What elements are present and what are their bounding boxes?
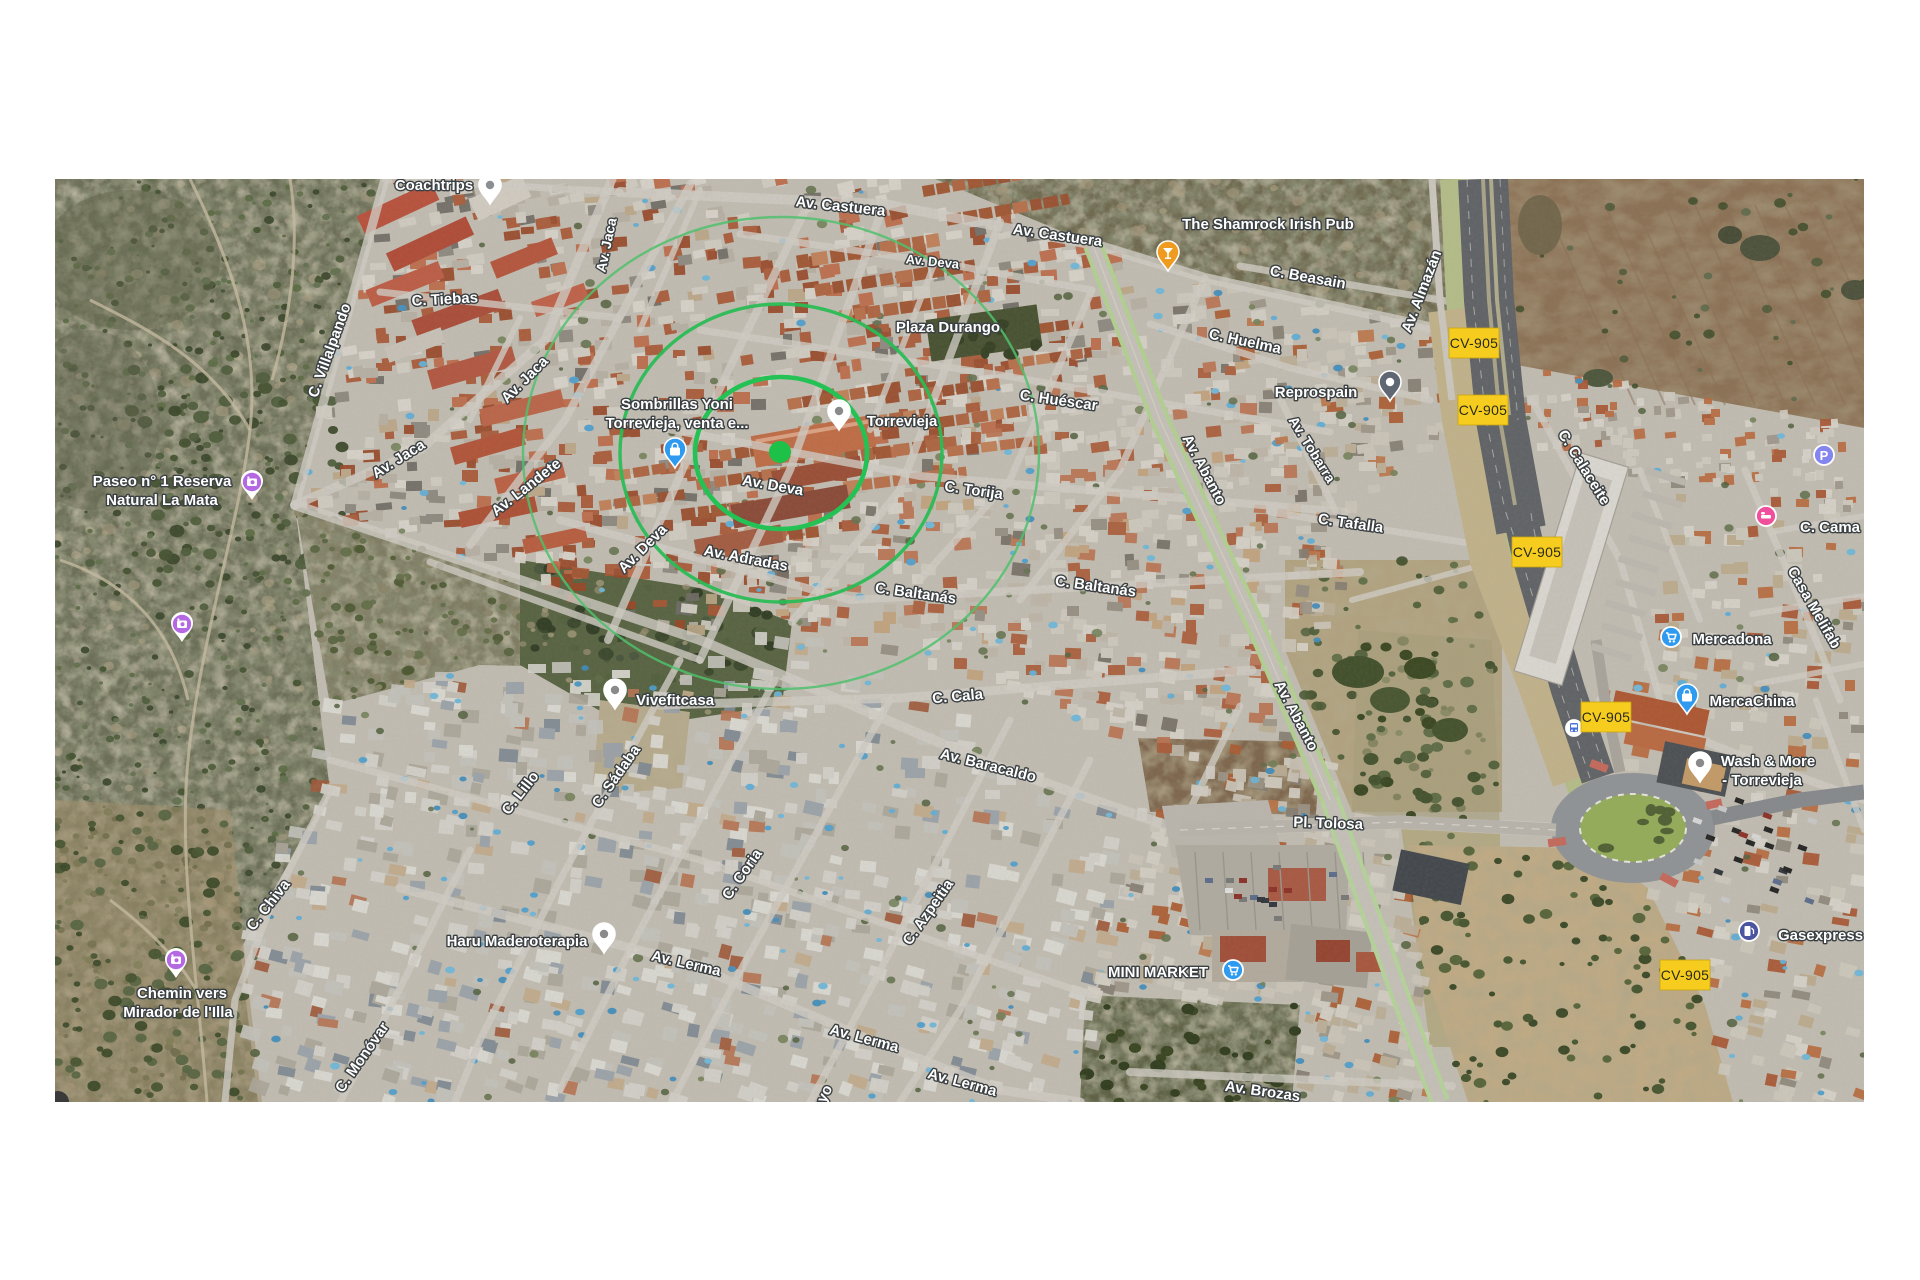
svg-text:CV-905: CV-905 bbox=[1450, 335, 1499, 351]
svg-text:Torrevieja: Torrevieja bbox=[867, 413, 938, 430]
svg-text:CV-905: CV-905 bbox=[1661, 967, 1710, 983]
svg-text:Reprospain: Reprospain bbox=[1275, 384, 1358, 401]
svg-text:Coachtrips: Coachtrips bbox=[395, 177, 473, 194]
svg-text:Paseo n° 1 Reserva: Paseo n° 1 Reserva bbox=[93, 473, 232, 490]
svg-text:CV-905: CV-905 bbox=[1459, 402, 1508, 418]
svg-text:Torrevieja, venta e...: Torrevieja, venta e... bbox=[605, 415, 748, 432]
svg-text:CV-905: CV-905 bbox=[1582, 709, 1631, 725]
svg-text:The Shamrock Irish Pub: The Shamrock Irish Pub bbox=[1182, 216, 1354, 233]
svg-text:CV-905: CV-905 bbox=[1513, 544, 1562, 560]
svg-text:P: P bbox=[1820, 448, 1829, 463]
svg-text:Plaza Durango: Plaza Durango bbox=[896, 319, 1000, 336]
svg-text:Natural La Mata: Natural La Mata bbox=[106, 492, 218, 509]
svg-text:Sombrillas Yoni: Sombrillas Yoni bbox=[621, 396, 733, 413]
